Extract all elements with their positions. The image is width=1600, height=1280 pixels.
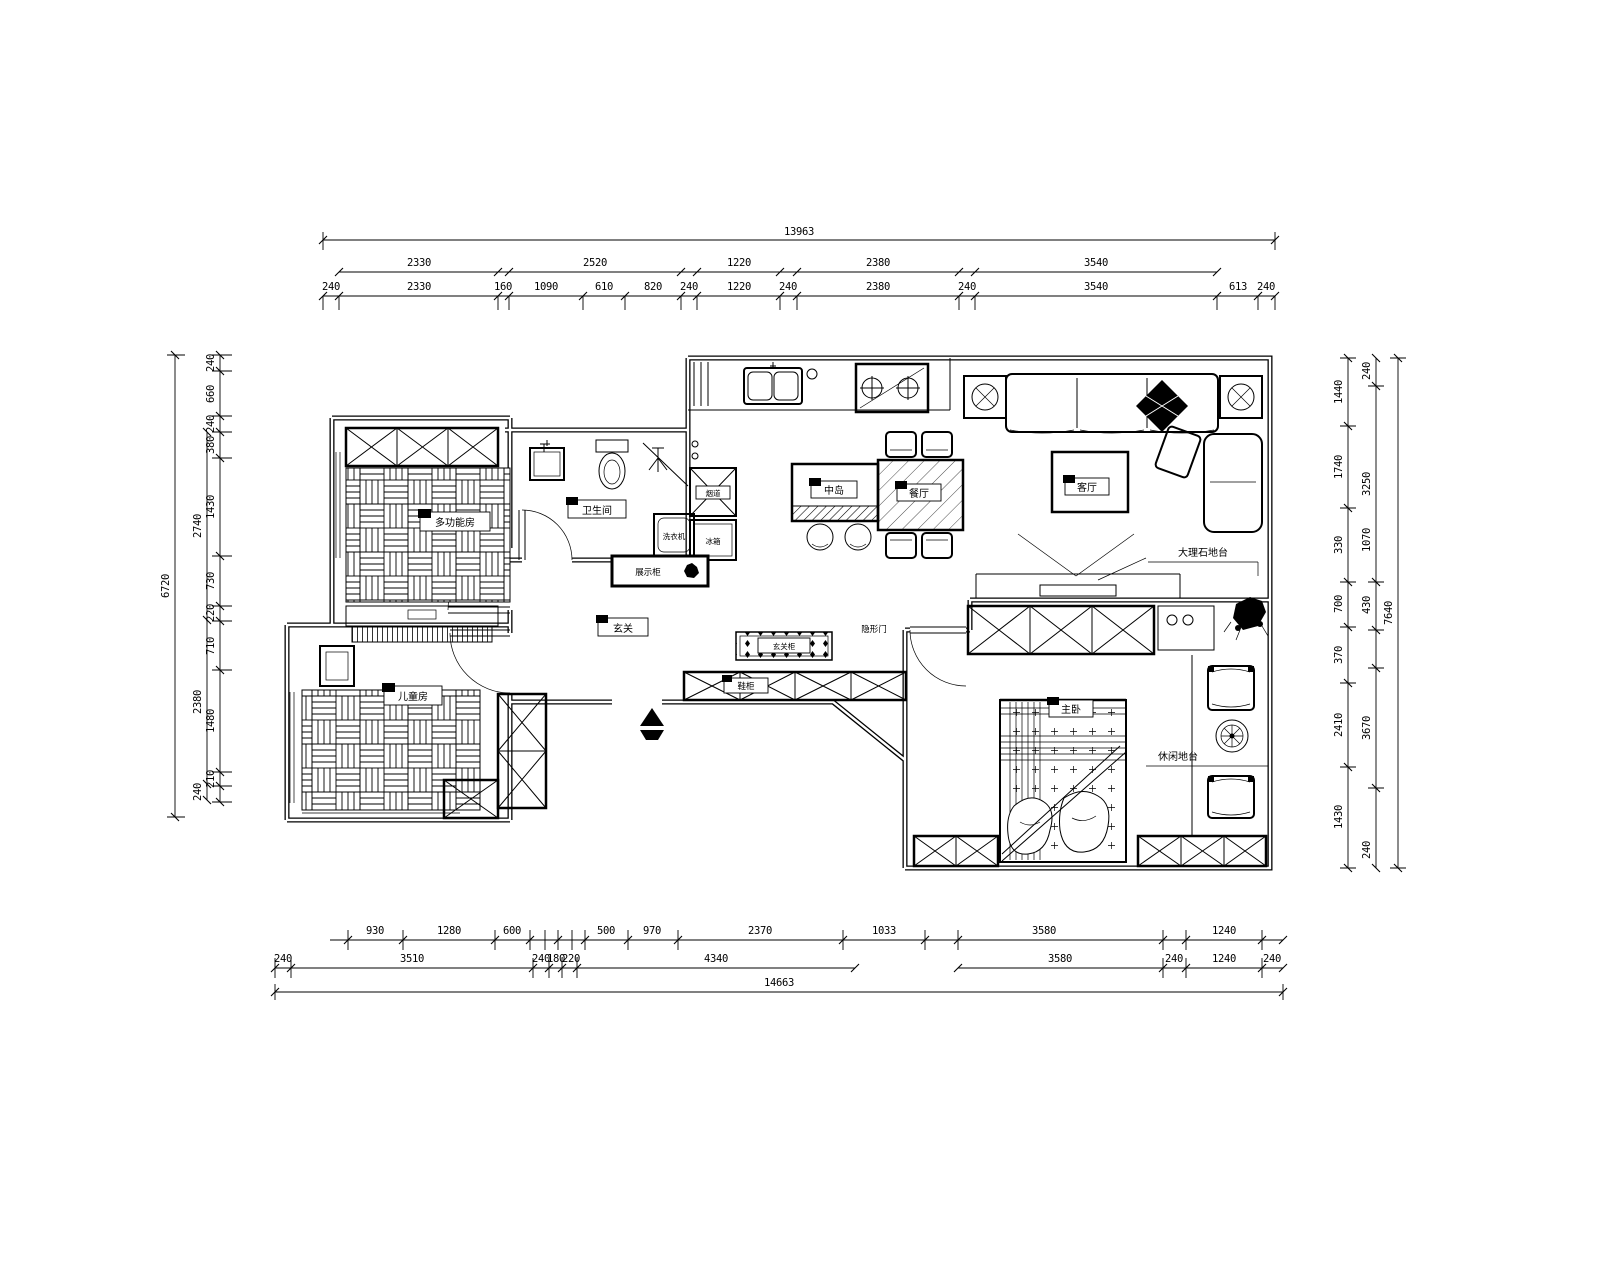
hidden-door-label: 隐形门 xyxy=(861,624,887,635)
dim-top-row3-3: 1090 xyxy=(534,281,558,293)
dim-bot-total: 14663 xyxy=(764,977,794,989)
dim-right-inner-2: 330 xyxy=(1333,536,1345,554)
dim-bot-row2-7: 240 xyxy=(1165,953,1183,965)
dim-top-row2-1: 2520 xyxy=(583,257,607,269)
dim-left-inner-0: 240 xyxy=(205,354,217,372)
living-label: 客厅 xyxy=(1077,481,1097,494)
dim-bot-row2-5: 4340 xyxy=(704,953,728,965)
dim-bot-row2-1: 3510 xyxy=(400,953,424,965)
dim-left-inner-8: 1480 xyxy=(205,709,217,733)
dim-top-row3-4: 610 xyxy=(595,281,613,293)
floor-plan-canvas: 13963 2330 2520 1220 2380 3540 240 2330 … xyxy=(0,0,1600,1280)
island-label: 中岛 xyxy=(824,484,844,497)
dim-left-mid-2: 240 xyxy=(192,783,204,801)
dim-top-row2-4: 3540 xyxy=(1084,257,1108,269)
dim-top-row3-11: 3540 xyxy=(1084,281,1108,293)
dim-right-mid-0: 240 xyxy=(1361,362,1373,380)
washer-label: 洗衣机 xyxy=(663,531,686,541)
dim-right-mid-2: 1070 xyxy=(1361,528,1373,552)
dim-top-row2-3: 2380 xyxy=(866,257,890,269)
dim-top-row3-2: 160 xyxy=(494,281,512,293)
marble-platform-label: 大理石地台 xyxy=(1178,546,1228,559)
dim-bot-row1-8: 1240 xyxy=(1212,925,1236,937)
dim-top-row3-12: 613 xyxy=(1229,281,1247,293)
dim-left-inner-7: 710 xyxy=(205,637,217,655)
dim-right-total: 7640 xyxy=(1383,601,1395,625)
dim-right-inner-3: 700 xyxy=(1333,595,1345,613)
dim-bot-row1-0: 930 xyxy=(366,925,384,937)
kids-tag: 儿童房 xyxy=(382,683,442,705)
dim-bot-row1-6: 1033 xyxy=(872,925,896,937)
dim-left-inner-2: 240 xyxy=(205,415,217,433)
dim-right-inner-0: 1440 xyxy=(1333,380,1345,404)
dim-top-row3-13: 240 xyxy=(1257,281,1275,293)
dim-top-row2-2: 1220 xyxy=(727,257,751,269)
dim-left-inner-3: 380 xyxy=(205,436,217,454)
dim-left-mid-1: 2380 xyxy=(192,690,204,714)
dim-top-row3-9: 2380 xyxy=(866,281,890,293)
master-label: 主卧 xyxy=(1061,703,1081,716)
leisure-label: 休闲地台 xyxy=(1158,750,1198,763)
dim-bot-row1-4: 970 xyxy=(643,925,661,937)
dim-left-inner-5: 730 xyxy=(205,572,217,590)
pillow xyxy=(1060,791,1109,852)
dim-left-total: 6720 xyxy=(160,574,172,598)
entry-label: 玄关 xyxy=(613,622,633,635)
dim-bot-row1-3: 500 xyxy=(597,925,615,937)
dim-right-mid-5: 240 xyxy=(1361,841,1373,859)
shoe-cabinet-label: 鞋柜 xyxy=(737,681,755,692)
dim-right-mid-1: 3250 xyxy=(1361,472,1373,496)
dim-left-mid-0: 2740 xyxy=(192,514,204,538)
dim-left-inner-1: 660 xyxy=(205,385,217,403)
dim-right-inner-5: 2410 xyxy=(1333,713,1345,737)
dim-right-inner-6: 1430 xyxy=(1333,805,1345,829)
multi-label: 多功能房 xyxy=(435,516,475,529)
dim-right-mid-3: 430 xyxy=(1361,596,1373,614)
dim-right-mid-4: 3670 xyxy=(1361,716,1373,740)
entry-cabinet-label: 玄关柜 xyxy=(773,641,796,651)
dim-bot-row2-6: 3580 xyxy=(1048,953,1072,965)
dim-top-row3-8: 240 xyxy=(779,281,797,293)
display-cabinet: 展示柜 xyxy=(612,556,708,586)
dim-bot-row1-7: 3580 xyxy=(1032,925,1056,937)
dim-bot-row2-4: 220 xyxy=(562,953,580,965)
dim-bot-row1-5: 2370 xyxy=(748,925,772,937)
dim-top-row3-6: 240 xyxy=(680,281,698,293)
dim-right-inner-1: 1740 xyxy=(1333,455,1345,479)
bath-tag: 卫生间 xyxy=(566,497,626,518)
entry-tag: 玄关 xyxy=(596,615,648,636)
dim-bot-row2-9: 240 xyxy=(1263,953,1281,965)
kids-floor-platform xyxy=(302,690,480,810)
round-table xyxy=(1216,720,1248,752)
display-cabinet-label: 展示柜 xyxy=(635,567,661,578)
dim-top-row2-0: 2330 xyxy=(407,257,431,269)
dim-top-row3-5: 820 xyxy=(644,281,662,293)
dim-right-inner-4: 370 xyxy=(1333,646,1345,664)
kids-label: 儿童房 xyxy=(398,690,428,703)
dim-top-row3-7: 1220 xyxy=(727,281,751,293)
dim-left-inner-6: 220 xyxy=(205,604,217,622)
fridge-label: 冰箱 xyxy=(706,536,721,546)
dim-top-row3-0: 240 xyxy=(322,281,340,293)
dim-bot-row1-1: 1280 xyxy=(437,925,461,937)
bed: 主卧 xyxy=(1000,697,1126,862)
bath-label: 卫生间 xyxy=(582,504,612,517)
entry-cabinet-strip: 玄关柜 xyxy=(736,632,832,660)
dim-bot-row2-0: 240 xyxy=(274,953,292,965)
dim-bot-row1-2: 600 xyxy=(503,925,521,937)
multi-floor-platform xyxy=(346,468,510,602)
floor-plan-page: 13963 2330 2520 1220 2380 3540 240 2330 … xyxy=(0,0,1600,1280)
dim-top-row3-1: 2330 xyxy=(407,281,431,293)
dim-top-total: 13963 xyxy=(784,226,814,238)
dim-top-row3-10: 240 xyxy=(958,281,976,293)
multi-tag: 多功能房 xyxy=(418,509,490,531)
dim-left-inner-4: 1430 xyxy=(205,495,217,519)
dim-bot-row2-8: 1240 xyxy=(1212,953,1236,965)
dim-left-inner-9: 210 xyxy=(205,770,217,788)
dining-label: 餐厅 xyxy=(909,487,929,500)
flue-label: 烟道 xyxy=(706,488,721,498)
